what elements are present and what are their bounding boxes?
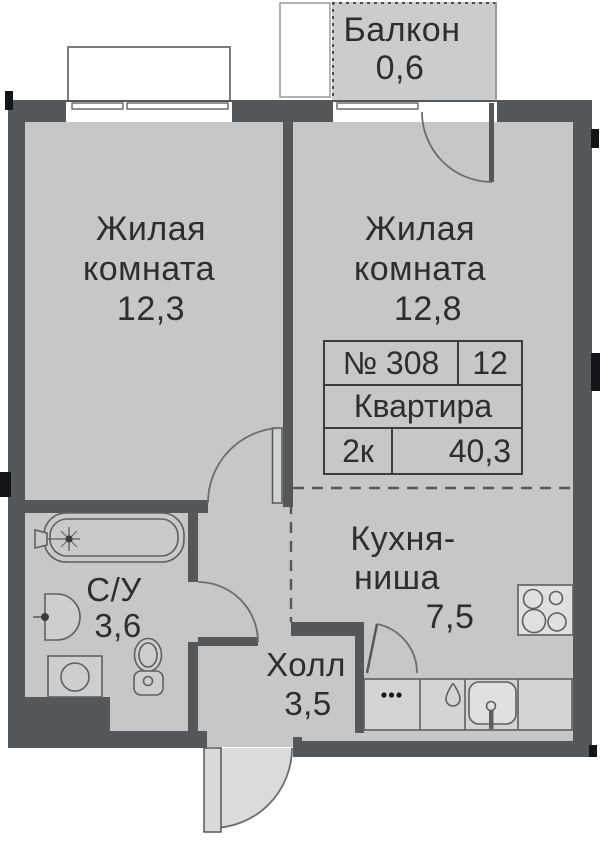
wall-bathroom-right-lower bbox=[188, 642, 198, 733]
apartment-type: Квартира bbox=[325, 386, 521, 427]
door-leaf bbox=[273, 428, 283, 503]
balcony-area: 0,6 bbox=[376, 51, 425, 85]
apartment-info-table: № 308 12 Квартира 2к 40,3 bbox=[323, 340, 523, 475]
apartment-rooms: 2к bbox=[325, 429, 391, 474]
apartment-total-area: 40,3 bbox=[391, 429, 521, 474]
apartment-number: № 308 bbox=[325, 342, 457, 384]
table-row: Квартира bbox=[325, 386, 521, 429]
table-row: № 308 12 bbox=[325, 342, 521, 386]
kitchen-sink-icon bbox=[469, 682, 516, 729]
bathtub-icon bbox=[35, 513, 184, 562]
wall-bathroom-top bbox=[25, 500, 208, 513]
kitchen-area: 7,5 bbox=[426, 600, 475, 634]
window-pane bbox=[127, 103, 228, 109]
bathtub-outer bbox=[44, 513, 184, 562]
toilet-tank bbox=[134, 671, 163, 695]
door-swing-area bbox=[212, 748, 292, 828]
hall-area: 3,5 bbox=[284, 687, 331, 720]
hall-label: Холл bbox=[266, 648, 346, 681]
bathtub-drain bbox=[65, 535, 72, 542]
wall-hall-horizontal bbox=[291, 622, 364, 636]
room1-area: 12,3 bbox=[117, 292, 185, 326]
room1-label-line2: комната bbox=[83, 252, 215, 286]
table-row: 2к 40,3 bbox=[325, 429, 521, 474]
section-mark bbox=[589, 745, 597, 757]
bay-window bbox=[68, 47, 230, 102]
section-mark bbox=[0, 472, 11, 497]
kitchen-sink-tap-stem bbox=[489, 710, 494, 729]
window-pane bbox=[337, 103, 418, 109]
room1-label-line1: Жилая bbox=[96, 212, 206, 246]
wall-right bbox=[573, 100, 592, 757]
apartment-floor-number: 12 bbox=[457, 342, 521, 384]
wall-left bbox=[8, 100, 25, 748]
wall-between-rooms bbox=[283, 122, 293, 507]
washing-machine-icon bbox=[48, 656, 102, 697]
cabinet-handle-dot bbox=[396, 692, 401, 697]
kitchen-label-line2: ниша bbox=[354, 561, 440, 595]
wall-bottom-right bbox=[293, 741, 592, 757]
stove-icon bbox=[518, 585, 573, 635]
door-leaf bbox=[204, 748, 221, 832]
door-leaf bbox=[198, 637, 258, 646]
window-pane bbox=[72, 103, 123, 109]
room2-area: 12,8 bbox=[394, 292, 462, 326]
section-mark bbox=[5, 91, 13, 110]
room2-label-line1: Жилая bbox=[365, 212, 475, 246]
kitchen-counter bbox=[364, 679, 572, 730]
entrance-door bbox=[204, 748, 292, 832]
balcony-label: Балкон bbox=[343, 13, 460, 47]
cabinet-handle-dot bbox=[381, 692, 386, 697]
bathtub-tap bbox=[35, 530, 47, 548]
cabinet-handle-dot bbox=[389, 692, 394, 697]
wall-bathroom-right-upper bbox=[188, 500, 198, 582]
wall-kitchen-stub bbox=[355, 622, 364, 733]
adjacent-balcony bbox=[280, 3, 330, 97]
wall-bathroom-bottom-chunk bbox=[20, 697, 110, 733]
kitchen-label-line1: Кухня- bbox=[350, 522, 455, 556]
bathroom-area: 3,6 bbox=[94, 609, 141, 642]
section-mark bbox=[591, 129, 599, 148]
sink-tap bbox=[41, 613, 49, 621]
wall-bottom-left bbox=[8, 731, 207, 748]
counter-outline bbox=[364, 679, 572, 730]
door-leaf bbox=[489, 103, 494, 182]
section-mark bbox=[591, 353, 600, 391]
floor-plan: Балкон 0,6 Жилая комната 12,3 Жилая комн… bbox=[0, 0, 600, 841]
bathroom-label: С/У bbox=[86, 573, 141, 606]
room2-label-line2: комната bbox=[354, 252, 486, 286]
